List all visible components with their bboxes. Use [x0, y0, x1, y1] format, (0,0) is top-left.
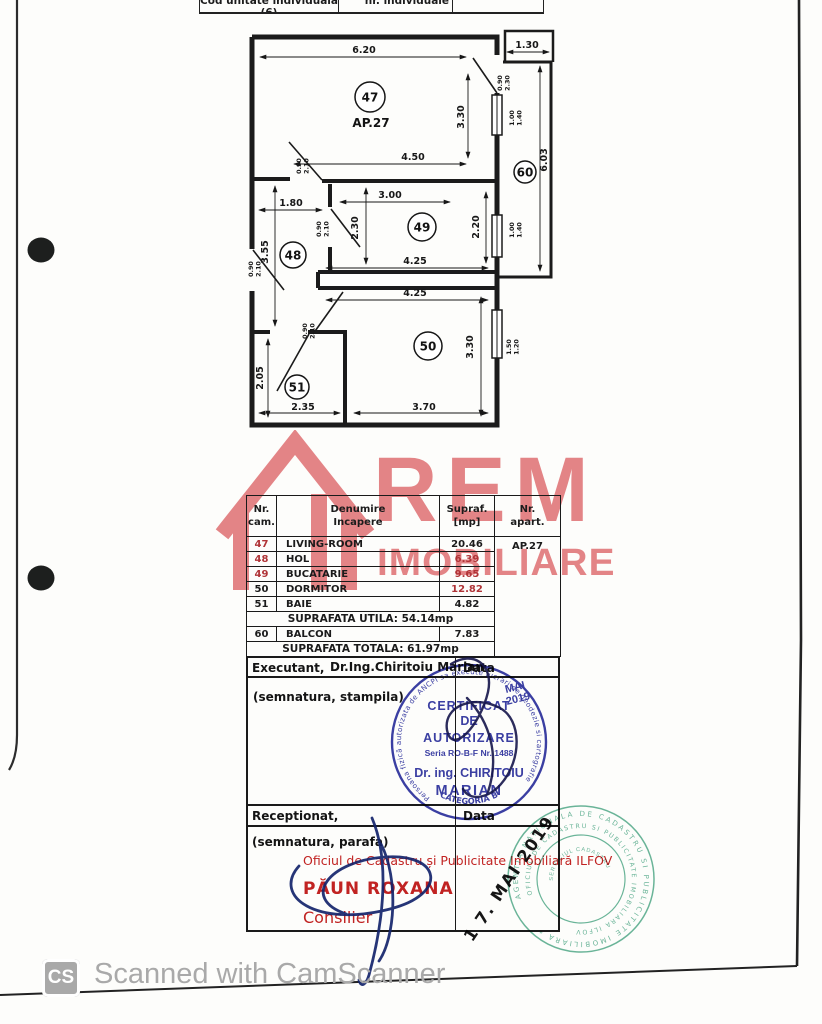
plan-dimension: 3.30 — [456, 105, 467, 129]
plan-dim-text: 2.05 — [255, 366, 266, 389]
plan-dim-text: 4.25 — [403, 288, 426, 299]
divider — [455, 806, 456, 825]
plan-dimension: 1.001.40 — [508, 222, 524, 238]
executant-name: Dr.Ing.Chiritoiu Marian — [330, 660, 484, 674]
room-name: DORMITOR — [277, 582, 440, 597]
room-area: 6.39 — [440, 552, 495, 567]
plan-dim-text: 3.55 — [260, 240, 271, 263]
plan-dimension: 6.03 — [539, 148, 550, 171]
plan-dim-text: 60 — [517, 166, 534, 180]
plan-dim-text: 4.25 — [403, 256, 426, 267]
room-name: BALCON — [277, 627, 440, 642]
plan-dim-text: 2.35 — [291, 402, 314, 413]
plan-dim-text: 2.20 — [471, 215, 482, 239]
col-header-nr-apart: Nr.apart. — [495, 496, 561, 537]
table-row: 47LIVING-ROOM20.46AP.27 — [247, 537, 561, 552]
floor-plan-drawing: 474849505160AP.276.201.304.501.803.004.2… — [0, 0, 822, 450]
plan-dimension: 6.20 — [352, 45, 376, 56]
suprafata-totala: SUPRAFATA TOTALA: 61.97mp — [247, 642, 495, 657]
apartment-number: AP.27 — [495, 537, 561, 657]
ocpi-red-stamp: Oficiul de Cadastru și Publicitate Imobi… — [303, 853, 573, 927]
room-area: 20.46 — [440, 537, 495, 552]
plan-dimension: 0.902.30 — [496, 75, 512, 91]
room-area-table-block: Nr.cam. DenumireIncapere Supraf.[mp] Nr.… — [246, 495, 560, 657]
room-number: 49 — [247, 567, 277, 582]
room-number: 50 — [247, 582, 277, 597]
receptionat-row: Receptionat, Data — [246, 804, 560, 827]
plan-dimension: 3.30 — [465, 335, 476, 359]
plan-dimension-lines — [259, 52, 549, 417]
signature-stamp-box: (semnatura, stampila) — [246, 676, 560, 806]
plan-dim-text: 47 — [362, 91, 379, 105]
room-name: BAIE — [277, 597, 440, 612]
plan-dim-text: 3.30 — [456, 105, 467, 129]
plan-dimension: 3.55 — [260, 240, 271, 263]
divider — [455, 678, 456, 804]
plan-dim-text: 2.10 — [255, 261, 263, 277]
plan-dimension: 2.20 — [471, 215, 482, 239]
suprafata-utila: SUPRAFATA UTILA: 54.14mp — [247, 612, 495, 627]
room-number: 51 — [247, 597, 277, 612]
plan-dim-text: 1.20 — [513, 339, 521, 355]
plan-dimension: 2.05 — [255, 366, 266, 389]
room-area: 9.65 — [440, 567, 495, 582]
executant-label: Executant, — [252, 661, 324, 675]
camscanner-footer-text: Scanned with CamScanner — [94, 958, 445, 991]
room-number: 60 — [247, 627, 277, 642]
plan-dim-text: 2.10 — [309, 323, 317, 339]
plan-dim-text: 4.50 — [401, 152, 425, 163]
plan-dimension: 1.30 — [515, 40, 539, 51]
room-number: 48 — [247, 552, 277, 567]
plan-dim-text: 51 — [289, 381, 306, 395]
plan-dimension: 2.30 — [350, 216, 361, 240]
plan-dimension: 3.70 — [412, 402, 436, 413]
plan-dim-text: 2.10 — [303, 158, 311, 174]
data-label-executant: Data — [463, 661, 495, 675]
plan-dim-text: 2.30 — [504, 75, 512, 91]
ocpi-officer-title: Consilier — [303, 908, 573, 927]
col-header-supraf: Supraf.[mp] — [440, 496, 495, 537]
divider — [455, 658, 456, 676]
plan-dim-text: 3.30 — [465, 335, 476, 359]
plan-dim-text: 48 — [285, 249, 302, 263]
plan-dimension: 1.80 — [279, 198, 303, 209]
plan-dim-text: 2.30 — [350, 216, 361, 240]
plan-dim-text: 1.40 — [516, 110, 524, 126]
room-area-table: Nr.cam. DenumireIncapere Supraf.[mp] Nr.… — [246, 495, 561, 657]
room-number: 47 — [247, 537, 277, 552]
receptionat-label: Receptionat, — [252, 809, 338, 823]
room-name: HOL — [277, 552, 440, 567]
plan-dimension: 0.902.10 — [247, 261, 263, 277]
plan-dim-text: 49 — [414, 221, 431, 235]
plan-dim-text: 2.10 — [323, 221, 331, 237]
plan-dimension: 1.501.20 — [505, 339, 521, 355]
plan-dim-text: 3.00 — [378, 190, 402, 201]
apartment-label: AP.27 — [352, 116, 389, 130]
col-header-denumire: DenumireIncapere — [277, 496, 440, 537]
plan-dimension: 1.001.40 — [508, 110, 524, 126]
plan-dim-text: 1.80 — [279, 198, 303, 209]
plan-dimension: 4.25 — [403, 256, 426, 267]
plan-dim-text: 6.03 — [539, 148, 550, 171]
plan-dim-text: 3.70 — [412, 402, 436, 413]
punch-hole-bottom — [28, 566, 55, 591]
plan-dimension: 3.00 — [378, 190, 402, 201]
room-area: 7.83 — [440, 627, 495, 642]
plan-dimension: 2.35 — [291, 402, 314, 413]
data-label-receptionat: Data — [463, 809, 495, 823]
plan-dimension: 0.902.10 — [295, 158, 311, 174]
plan-dimension: 4.50 — [401, 152, 425, 163]
ocpi-officer-name: PĂUN ROXANA — [303, 879, 573, 899]
scanned-cadastral-document: { "page": { "top_strip": {"cells": ["Cod… — [0, 0, 822, 1024]
plan-dim-text: 1.30 — [515, 40, 539, 51]
executant-row: Executant, Dr.Ing.Chiritoiu Marian Data — [246, 656, 560, 678]
room-name: BUCATARIE — [277, 567, 440, 582]
plan-dimension: 4.25 — [403, 288, 426, 299]
plan-labels: 474849505160AP.276.201.304.501.803.004.2… — [247, 40, 550, 413]
semnatura-stampila-label: (semnatura, stampila) — [253, 690, 404, 704]
camscanner-badge-icon: CS — [42, 959, 80, 997]
semnatura-parafa-label: (semnatura, parafa) — [252, 835, 388, 849]
plan-dimension: 0.902.10 — [315, 221, 331, 237]
plan-dimension: 0.902.10 — [301, 323, 317, 339]
col-header-nr-cam: Nr.cam. — [247, 496, 277, 537]
plan-dim-text: 50 — [420, 340, 437, 354]
room-area: 4.82 — [440, 597, 495, 612]
room-name: LIVING-ROOM — [277, 537, 440, 552]
room-area: 12.82 — [440, 582, 495, 597]
plan-dim-text: 1.40 — [516, 222, 524, 238]
plan-dim-text: 6.20 — [352, 45, 376, 56]
